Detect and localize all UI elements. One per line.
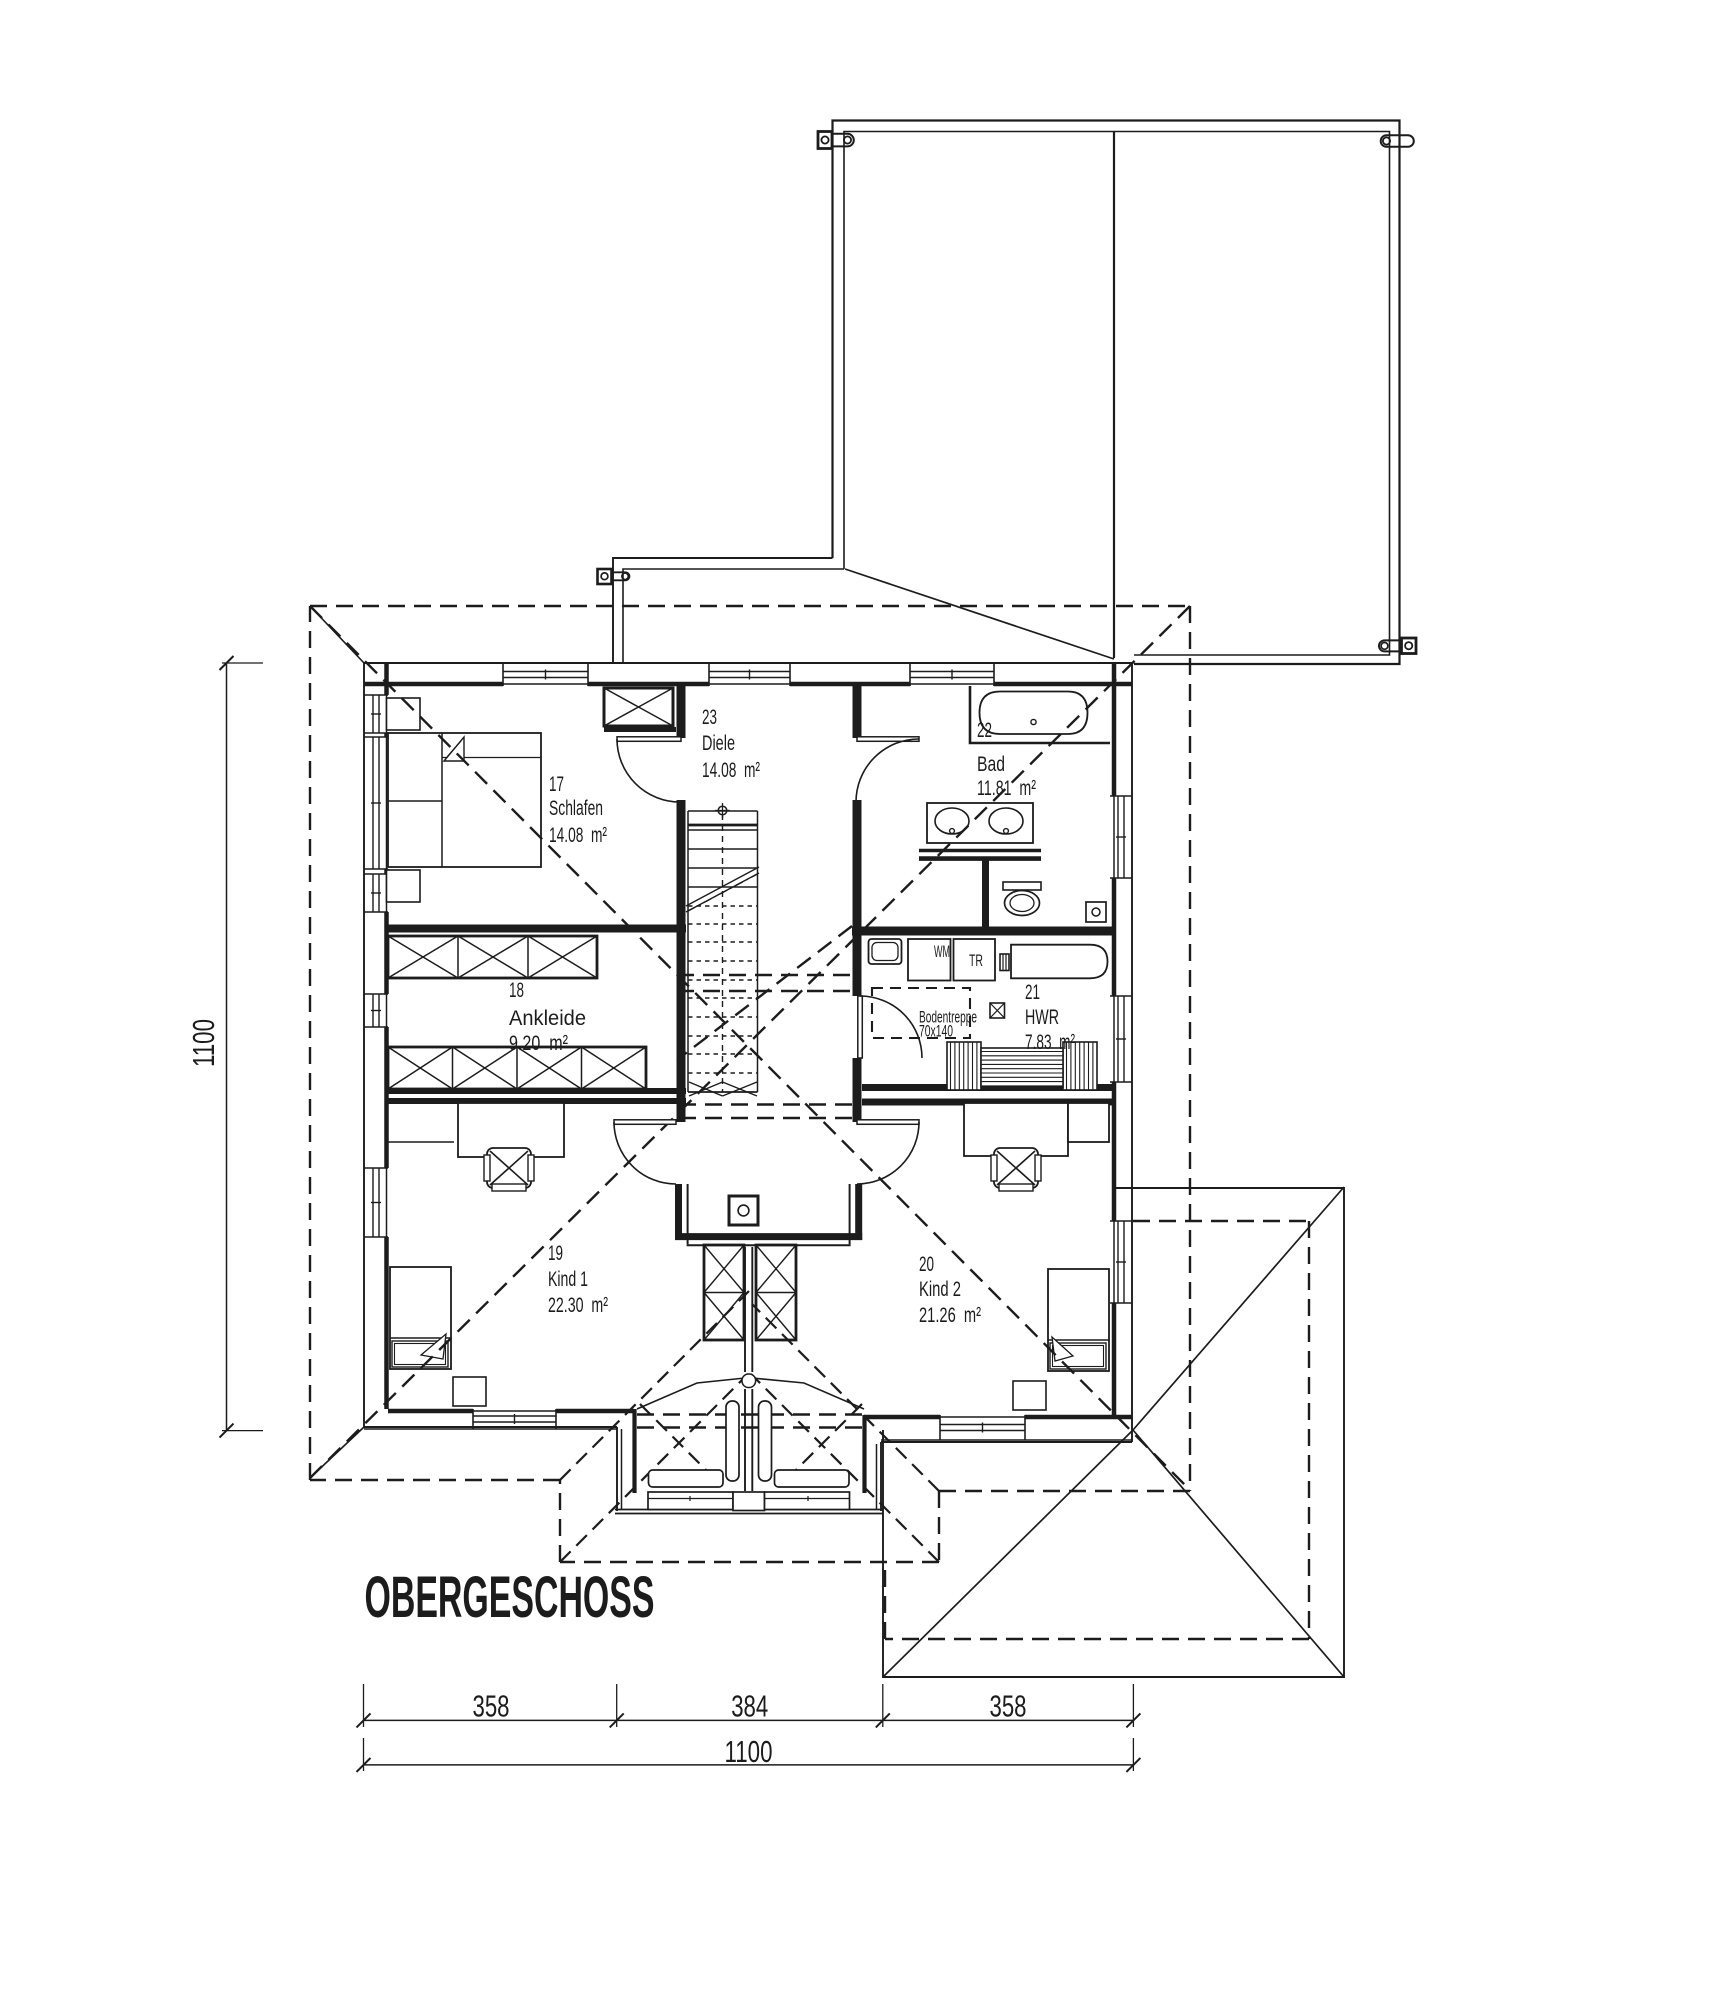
svg-text:Ankleide: Ankleide: [509, 1006, 586, 1030]
svg-text:11.81 m²: 11.81 m²: [977, 776, 1036, 800]
svg-text:1100: 1100: [186, 1019, 221, 1067]
svg-text:17: 17: [549, 772, 564, 796]
svg-text:Schlafen: Schlafen: [549, 796, 603, 820]
svg-text:1100: 1100: [725, 1734, 773, 1769]
svg-text:358: 358: [473, 1689, 510, 1724]
svg-text:70x140: 70x140: [919, 1022, 953, 1041]
svg-text:358: 358: [990, 1689, 1027, 1724]
svg-text:WM: WM: [934, 942, 950, 961]
svg-text:18: 18: [509, 978, 524, 1002]
svg-text:Kind 2: Kind 2: [919, 1277, 961, 1301]
svg-text:22.30 m²: 22.30 m²: [548, 1293, 608, 1317]
svg-text:22: 22: [977, 718, 992, 742]
svg-text:Diele: Diele: [702, 731, 735, 755]
svg-text:9.20 m²: 9.20 m²: [509, 1031, 568, 1055]
svg-text:TR: TR: [969, 951, 983, 970]
svg-text:20: 20: [919, 1252, 934, 1276]
svg-text:Bad: Bad: [977, 752, 1005, 776]
svg-text:7.83 m²: 7.83 m²: [1025, 1030, 1075, 1054]
svg-text:21.26 m²: 21.26 m²: [919, 1303, 981, 1327]
svg-text:19: 19: [548, 1241, 563, 1265]
svg-text:384: 384: [731, 1689, 768, 1724]
svg-text:23: 23: [702, 705, 717, 729]
svg-text:Kind 1: Kind 1: [548, 1267, 588, 1291]
svg-text:14.08 m²: 14.08 m²: [702, 758, 760, 782]
svg-text:HWR: HWR: [1025, 1005, 1059, 1029]
svg-text:21: 21: [1025, 980, 1040, 1004]
svg-text:14.08 m²: 14.08 m²: [549, 823, 607, 847]
svg-text:OBERGESCHOSS: OBERGESCHOSS: [365, 1565, 655, 1630]
